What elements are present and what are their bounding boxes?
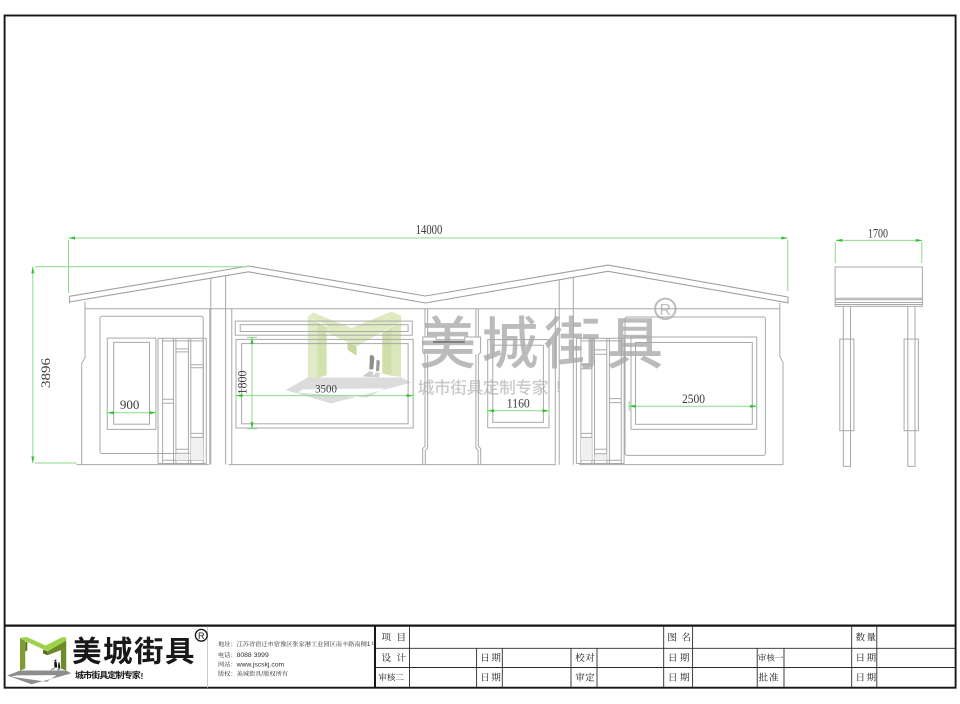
svg-text:8088 3999: 8088 3999 — [237, 652, 269, 659]
svg-text:www.jscskj.com: www.jscskj.com — [236, 661, 285, 668]
svg-text:R: R — [660, 302, 672, 319]
svg-text:!: ! — [556, 379, 560, 396]
svg-text:1: 1 — [367, 641, 371, 648]
svg-text:1800: 1800 — [236, 371, 250, 395]
svg-text:/: / — [261, 671, 263, 678]
svg-text:3896: 3896 — [38, 357, 53, 388]
svg-text:!: ! — [141, 671, 144, 681]
svg-text:1160: 1160 — [507, 397, 530, 411]
svg-text:1700: 1700 — [868, 227, 888, 241]
svg-text:900: 900 — [120, 398, 140, 412]
svg-text:R: R — [198, 631, 205, 641]
svg-text:2500: 2500 — [682, 392, 705, 406]
svg-text:14000: 14000 — [416, 222, 443, 237]
svg-text:3500: 3500 — [315, 382, 337, 396]
